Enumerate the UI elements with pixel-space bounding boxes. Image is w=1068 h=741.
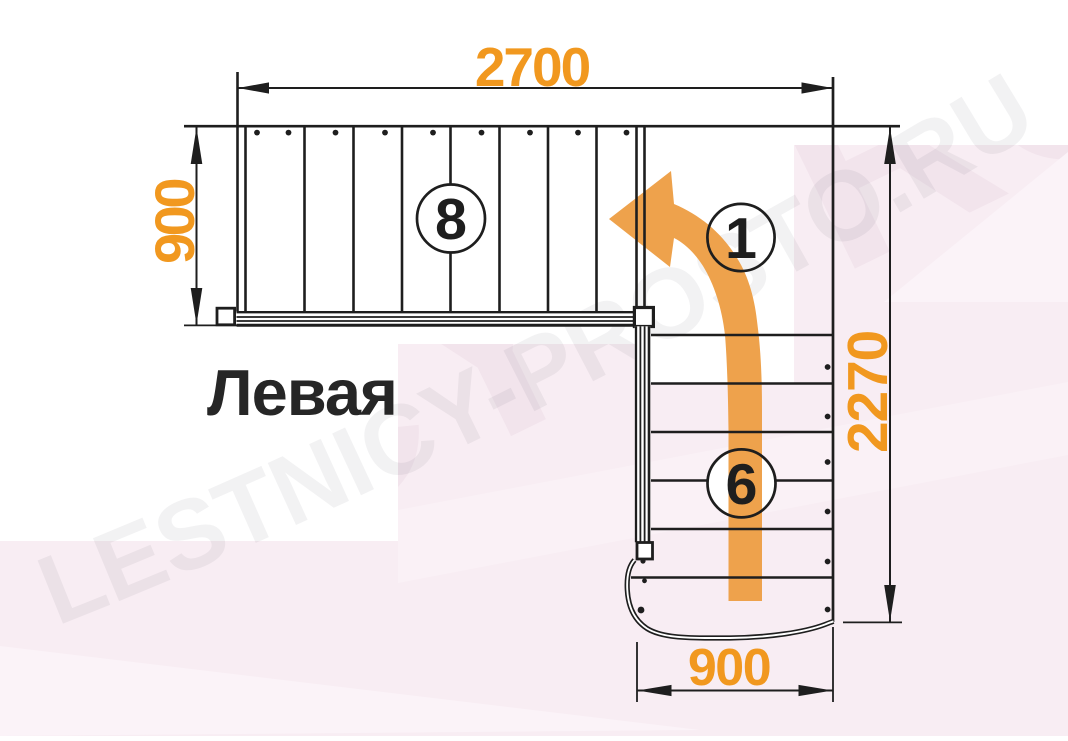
svg-text:Левая: Левая	[207, 356, 397, 429]
svg-text:6: 6	[726, 453, 758, 517]
svg-text:900: 900	[143, 180, 206, 264]
svg-text:900: 900	[688, 639, 770, 697]
svg-text:2270: 2270	[836, 331, 900, 453]
svg-text:8: 8	[435, 188, 467, 252]
svg-text:1: 1	[725, 207, 757, 271]
svg-text:2700: 2700	[475, 36, 590, 98]
